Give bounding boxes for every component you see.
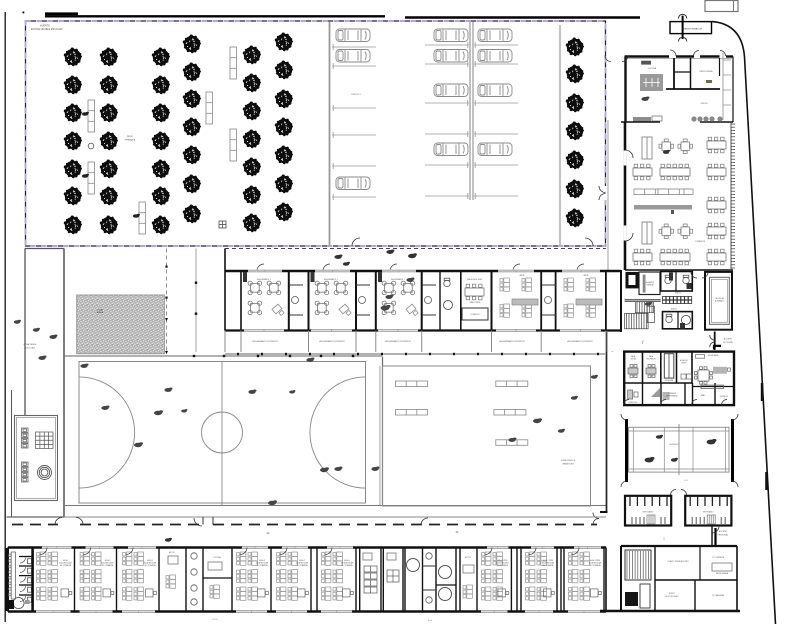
svg-text:→: → bbox=[610, 348, 614, 353]
svg-text:ω: ω bbox=[267, 531, 270, 535]
svg-text:COCINA: COCINA bbox=[648, 67, 657, 70]
svg-text:TRANSFORMADOR: TRANSFORMADOR bbox=[682, 28, 703, 31]
svg-text:AULA INFANTIL EXTERIOR: AULA INFANTIL EXTERIOR bbox=[319, 340, 345, 343]
svg-text:TUTORIA: TUTORIA bbox=[213, 556, 221, 559]
svg-text:GRUPO: GRUPO bbox=[669, 593, 676, 595]
svg-text:PROFESOR: PROFESOR bbox=[646, 359, 656, 361]
svg-text:SECRETARIA: SECRETARIA bbox=[708, 354, 720, 357]
svg-text:VESTIBULO: VESTIBULO bbox=[720, 396, 729, 398]
svg-text:AULA INFANTIL EXTERIOR: AULA INFANTIL EXTERIOR bbox=[567, 340, 593, 343]
svg-text:ARENA: ARENA bbox=[97, 311, 104, 314]
svg-text:CONSERJE: CONSERJE bbox=[668, 393, 676, 395]
svg-text:··: ·· bbox=[399, 298, 401, 301]
svg-text:ESCOLAR: ESCOLAR bbox=[25, 347, 35, 350]
svg-text:COMEDOR: COMEDOR bbox=[695, 241, 706, 243]
svg-text:AULA INFANTIL 1: AULA INFANTIL 1 bbox=[324, 278, 338, 281]
svg-text:CTO LIMPIEZA: CTO LIMPIEZA bbox=[712, 556, 725, 559]
svg-text:REPOSTERIA: REPOSTERIA bbox=[700, 70, 714, 73]
svg-text:AULA: AULA bbox=[584, 274, 589, 277]
svg-text:SALA USOS MULT.: SALA USOS MULT. bbox=[467, 278, 483, 281]
svg-text:REPROGRAFIA: REPROGRAFIA bbox=[716, 572, 729, 575]
svg-text:GRUPO: GRUPO bbox=[681, 363, 688, 365]
svg-text:BIBLIOTECA: BIBLIOTECA bbox=[470, 301, 481, 304]
svg-text:COMEDOR: COMEDOR bbox=[471, 314, 481, 316]
svg-text:AULA INFANTIL EXTERIOR: AULA INFANTIL EXTERIOR bbox=[385, 340, 411, 343]
svg-text:PERSONAL: PERSONAL bbox=[718, 534, 730, 537]
svg-text:OFFICE: OFFICE bbox=[700, 103, 708, 105]
svg-text:ELECTROGENO: ELECTROGENO bbox=[666, 596, 680, 598]
svg-text:··: ·· bbox=[265, 298, 267, 301]
svg-text:AULA INFANTIL 1: AULA INFANTIL 1 bbox=[391, 278, 405, 281]
svg-text:PRIMARIA: PRIMARIA bbox=[125, 139, 136, 142]
svg-text:··: ·· bbox=[332, 298, 334, 301]
svg-text:AULA INFANTIL EXTERIOR: AULA INFANTIL EXTERIOR bbox=[499, 340, 525, 343]
svg-text:ZONA VERDE: ZONA VERDE bbox=[24, 343, 38, 346]
svg-text:PARKING: PARKING bbox=[351, 93, 361, 96]
svg-text:AULA INFANTIL EXTERIOR: AULA INFANTIL EXTERIOR bbox=[252, 340, 278, 343]
svg-text:AULA: AULA bbox=[520, 274, 525, 277]
svg-text:APOYO: APOYO bbox=[169, 551, 176, 554]
svg-text:DOCENTE: DOCENTE bbox=[723, 342, 733, 344]
svg-text:ACCESO: ACCESO bbox=[719, 530, 728, 533]
svg-text:ƒ: ƒ bbox=[642, 340, 644, 344]
svg-text:CUARTO INSTALACIONES: CUARTO INSTALACIONES bbox=[668, 560, 690, 563]
svg-text:VISITA: VISITA bbox=[630, 358, 636, 361]
svg-text:PATIO: PATIO bbox=[127, 135, 134, 138]
svg-text:19.60: 19.60 bbox=[212, 619, 218, 621]
svg-text:VESTUARIO: VESTUARIO bbox=[703, 511, 714, 514]
svg-text:CTO BASURAS: CTO BASURAS bbox=[712, 594, 725, 597]
svg-text:ECOSALUDABLE ESCOLAR: ECOSALUDABLE ESCOLAR bbox=[31, 28, 63, 31]
svg-text:GIMNASIO: GIMNASIO bbox=[669, 443, 679, 446]
svg-text:AULA INFANTIL 1: AULA INFANTIL 1 bbox=[257, 278, 271, 281]
svg-text:ACCESO: ACCESO bbox=[724, 338, 733, 341]
svg-text:VESTUARIO: VESTUARIO bbox=[643, 511, 654, 514]
svg-text:DIRECCION: DIRECCION bbox=[629, 402, 637, 404]
svg-text:INFANTILES: INFANTILES bbox=[562, 463, 574, 466]
svg-text:ZONA JUEGOS: ZONA JUEGOS bbox=[561, 459, 576, 462]
